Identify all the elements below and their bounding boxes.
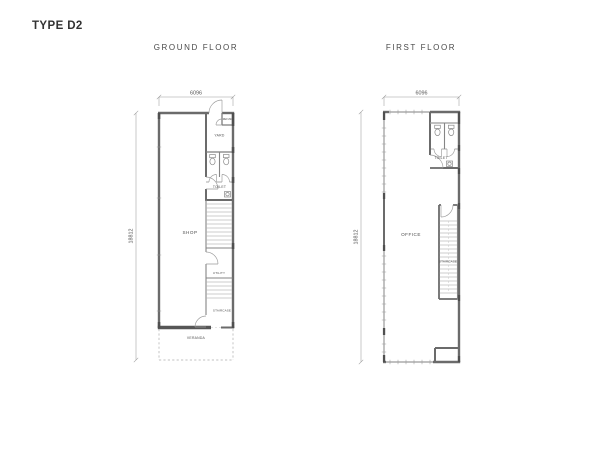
- veranda-label: VERANDA: [187, 336, 206, 340]
- ground-stair-treads: [207, 204, 232, 298]
- refuse-label: REFUSE: [223, 118, 233, 121]
- ground-dimensions: 6096 18812: [129, 91, 236, 363]
- staircase-door-arc: [195, 316, 206, 327]
- toilet-stall-door-arc: [222, 175, 230, 183]
- pier: [383, 355, 385, 362]
- wc-bowl: [224, 158, 229, 165]
- ground-floor-heading: GROUND FLOOR: [120, 43, 272, 52]
- first-stair-treads: [440, 221, 457, 293]
- stair-treads-lower: [207, 282, 232, 298]
- pier: [232, 147, 235, 153]
- pier: [458, 145, 460, 151]
- pier: [383, 112, 385, 120]
- pier: [232, 322, 235, 328]
- ground-height-dimension: 18812: [129, 229, 135, 244]
- ground-wall-piers: [158, 113, 235, 328]
- pier: [158, 113, 161, 119]
- veranda-outline: [159, 329, 233, 360]
- entrance-door-arc: [209, 100, 222, 113]
- wc-bowl: [449, 129, 454, 136]
- ground-staircase-label: STAIRCASE: [213, 309, 231, 313]
- wc-tank: [448, 125, 454, 128]
- first-staircase-label: STAIRCASE: [439, 260, 457, 264]
- first-floor-plan: 6096 18812: [345, 85, 475, 380]
- page-title: TYPE D2: [32, 20, 83, 32]
- ledge-wall: [435, 348, 459, 362]
- first-room-labels: OFFICE TOILET STAIRCASE: [401, 156, 457, 264]
- yard-label: YARD: [214, 134, 224, 138]
- first-width-dimension: 6096: [416, 91, 428, 97]
- sink-basin: [226, 193, 229, 196]
- ground-width-dimension: 6096: [190, 91, 202, 97]
- pier: [458, 168, 460, 174]
- stair-treads-upper: [207, 204, 232, 244]
- first-toilet-label: TOILET: [434, 156, 447, 160]
- ground-interior-walls: [205, 113, 234, 315]
- wc-bowl: [210, 158, 215, 165]
- shop-label: SHOP: [182, 230, 197, 235]
- ground-toilet-label: TOILET: [213, 185, 226, 189]
- utility-door-arc: [206, 252, 218, 264]
- ground-floor-plan: 6096 18812: [120, 85, 250, 380]
- ground-veranda: [159, 329, 233, 360]
- staircase-door-arc: [441, 205, 453, 217]
- utility-label: UTILITY: [213, 271, 225, 275]
- wc-bowl: [435, 129, 440, 136]
- pier: [158, 322, 161, 328]
- wc-tank: [210, 155, 216, 158]
- wc-tank: [435, 125, 441, 128]
- pier: [458, 112, 460, 124]
- ground-exterior-walls: [157, 113, 234, 328]
- pier: [383, 328, 385, 335]
- toilet-stall-door-arc: [209, 175, 217, 183]
- pier: [458, 203, 460, 209]
- pier: [458, 356, 460, 362]
- pier: [458, 295, 460, 301]
- pier: [232, 177, 235, 183]
- pier: [383, 193, 385, 199]
- pier: [383, 245, 385, 251]
- floor-plan-sheet: TYPE D2 GROUND FLOOR FIRST FLOOR 6096 18…: [0, 0, 600, 450]
- sink-basin: [448, 162, 451, 165]
- first-height-dimension: 18812: [354, 230, 360, 245]
- first-floor-heading: FIRST FLOOR: [345, 43, 497, 52]
- refuse-door-arc: [216, 119, 222, 125]
- pier: [232, 243, 235, 249]
- office-label: OFFICE: [401, 232, 421, 237]
- wc-tank: [223, 155, 229, 158]
- toilet-stall-door-arc: [447, 149, 455, 157]
